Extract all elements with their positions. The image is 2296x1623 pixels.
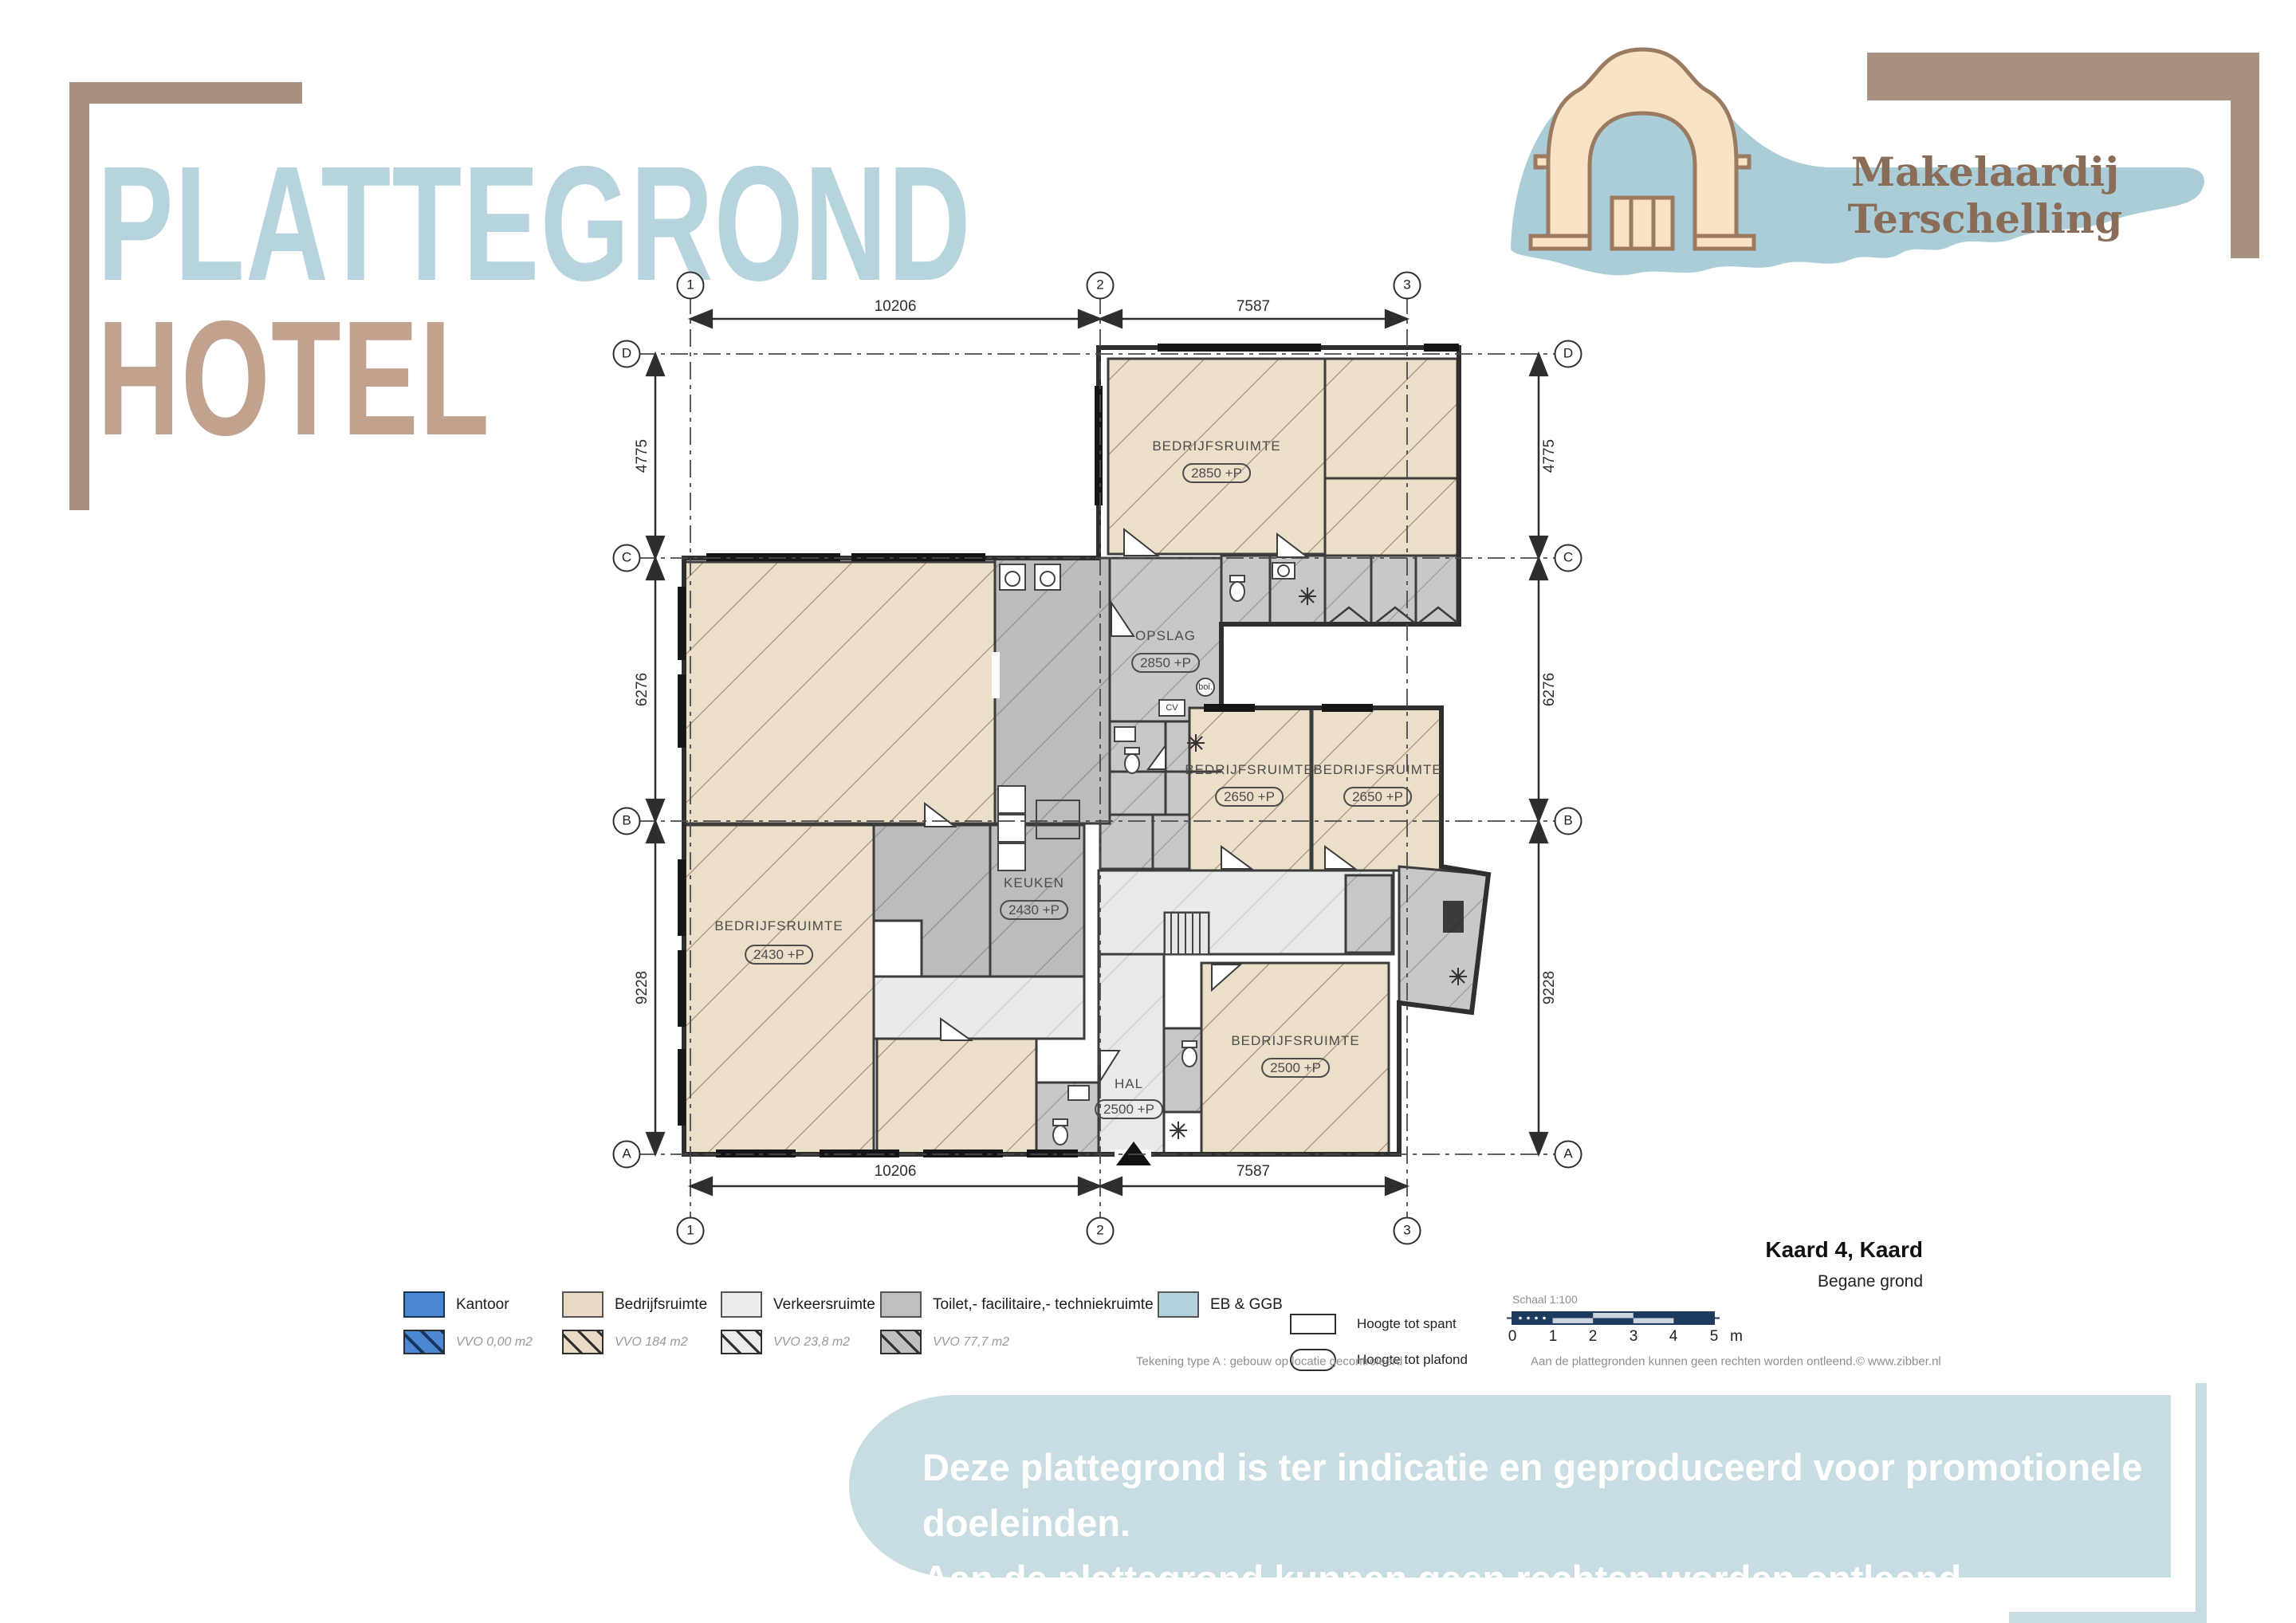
grid-col-1-top: 1 bbox=[677, 272, 705, 300]
note-drawing-type: Tekening type A : gebouw op locatie geco… bbox=[1136, 1355, 1402, 1369]
height-spant-symbol bbox=[1290, 1314, 1336, 1334]
scale-tick-0: 0 bbox=[1508, 1328, 1517, 1346]
floor-name: Begane grond bbox=[1818, 1272, 1923, 1291]
room-label-bedrijfsruimte-2650-right: BEDRIJFSRUIMTE bbox=[1313, 762, 1441, 778]
fixture-label-boiler: boi. bbox=[1198, 682, 1213, 692]
legend-vvo-bedrijfsruimte: VVO 184 m2 bbox=[615, 1335, 688, 1350]
fixture-label-cv: CV bbox=[1166, 703, 1177, 713]
dim-right-b-a: 9228 bbox=[1541, 971, 1559, 1004]
room-badge-2650-right: 2650 +P bbox=[1343, 787, 1412, 807]
grid-row-b-left: B bbox=[613, 808, 641, 835]
legend-swatch-bedrijfsruimte-vvo bbox=[562, 1330, 603, 1354]
legend-swatch-kantoor-vvo bbox=[403, 1330, 445, 1354]
scale-tick-3: 3 bbox=[1630, 1328, 1638, 1346]
grid-row-a-left: A bbox=[613, 1141, 641, 1169]
room-label-bedrijfsruimte-2850: BEDRIJFSRUIMTE bbox=[1152, 438, 1280, 454]
bracket-bottom-right-vertical bbox=[2196, 1383, 2207, 1623]
legend-label-bedrijfsruimte: Bedrijfsruimte bbox=[615, 1296, 707, 1314]
grid-col-1-bottom: 1 bbox=[677, 1217, 705, 1245]
scale-tick-2: 2 bbox=[1589, 1328, 1598, 1346]
grid-col-2-top: 2 bbox=[1087, 272, 1115, 300]
disclaimer-banner: Deze plattegrond is ter indicatie en gep… bbox=[849, 1395, 2171, 1578]
room-label-hal: HAL bbox=[1115, 1076, 1143, 1092]
bracket-bottom-right-horizontal bbox=[2009, 1612, 2207, 1623]
legend-label-toilet: Toilet,- facilitaire,- techniekruimte bbox=[933, 1296, 1154, 1314]
grid-row-d-left: D bbox=[613, 340, 641, 368]
room-badge-2500: 2500 +P bbox=[1261, 1058, 1330, 1078]
grid-row-c-right: C bbox=[1555, 544, 1582, 572]
room-badge-keuken: 2430 +P bbox=[1000, 900, 1068, 920]
dim-left-d-c: 4775 bbox=[634, 439, 651, 473]
room-label-opslag: OPSLAG bbox=[1135, 628, 1196, 644]
legend-swatch-toilet-vvo bbox=[880, 1330, 922, 1354]
room-label-bedrijfsruimte-2500: BEDRIJFSRUIMTE bbox=[1231, 1033, 1359, 1049]
grid-row-c-left: C bbox=[613, 544, 641, 572]
room-label-bedrijfsruimte-2650-left: BEDRIJFSRUIMTE bbox=[1185, 762, 1313, 778]
legend-swatch-eb-ggb bbox=[1158, 1291, 1199, 1318]
dim-right-c-b: 6276 bbox=[1541, 673, 1559, 706]
dim-right-d-c: 4775 bbox=[1541, 439, 1559, 473]
dim-top-2-3: 7587 bbox=[1236, 298, 1270, 316]
room-badge-opslag: 2850 +P bbox=[1131, 653, 1200, 673]
scale-tick-5: 5 bbox=[1710, 1328, 1719, 1346]
dim-left-c-b: 6276 bbox=[634, 673, 651, 706]
legend-vvo-verkeersruimte: VVO 23,8 m2 bbox=[773, 1335, 850, 1350]
dim-bottom-1-2: 10206 bbox=[875, 1163, 917, 1181]
legend-vvo-toilet: VVO 77,7 m2 bbox=[933, 1335, 1009, 1350]
legend-swatch-bedrijfsruimte bbox=[562, 1291, 603, 1318]
scale-label: Schaal 1:100 bbox=[1512, 1293, 1578, 1306]
scale-unit: m bbox=[1730, 1328, 1743, 1346]
dim-left-b-a: 9228 bbox=[634, 971, 651, 1004]
disclaimer-line-1: Deze plattegrond is ter indicatie en gep… bbox=[922, 1440, 2171, 1551]
grid-row-b-right: B bbox=[1555, 808, 1582, 835]
scale-tick-4: 4 bbox=[1669, 1328, 1678, 1346]
grid-col-3-bottom: 3 bbox=[1394, 1217, 1421, 1245]
disclaimer-line-2: Aan de plattegrond kunnen geen rechten w… bbox=[922, 1551, 2171, 1607]
room-badge-2850: 2850 +P bbox=[1182, 463, 1251, 483]
legend-vvo-kantoor: VVO 0,00 m2 bbox=[456, 1335, 533, 1350]
grid-row-a-right: A bbox=[1555, 1141, 1582, 1169]
room-label-bedrijfsruimte-2430: BEDRIJFSRUIMTE bbox=[714, 918, 843, 934]
dim-top-1-2: 10206 bbox=[875, 298, 917, 316]
floorplan-drawing bbox=[0, 0, 2296, 1623]
project-title: Kaard 4, Kaard bbox=[1765, 1237, 1923, 1263]
room-badge-hal: 2500 +P bbox=[1095, 1099, 1163, 1119]
height-spant-label: Hoogte tot spant bbox=[1357, 1316, 1457, 1332]
legend-swatch-verkeersruimte bbox=[721, 1291, 762, 1318]
room-badge-2650-left: 2650 +P bbox=[1215, 787, 1284, 807]
legend-swatch-verkeersruimte-vvo bbox=[721, 1330, 762, 1354]
grid-col-3-top: 3 bbox=[1394, 272, 1421, 300]
grid-col-2-bottom: 2 bbox=[1087, 1217, 1115, 1245]
room-badge-2430: 2430 +P bbox=[745, 945, 813, 965]
legend-label-verkeersruimte: Verkeersruimte bbox=[773, 1296, 875, 1314]
grid-row-d-right: D bbox=[1555, 340, 1582, 368]
page: { "title": { "line1": "PLATTEGROND", "li… bbox=[0, 0, 2296, 1623]
legend-label-eb-ggb: EB & GGB bbox=[1210, 1296, 1283, 1314]
scale-bar bbox=[1507, 1312, 1720, 1324]
dim-bottom-2-3: 7587 bbox=[1236, 1163, 1270, 1181]
legend-swatch-toilet bbox=[880, 1291, 922, 1318]
scale-tick-1: 1 bbox=[1549, 1328, 1558, 1346]
note-copyright: Aan de plattegronden kunnen geen rechten… bbox=[1531, 1355, 1941, 1369]
legend-label-kantoor: Kantoor bbox=[456, 1296, 509, 1314]
legend-swatch-kantoor bbox=[403, 1291, 445, 1318]
rooms bbox=[684, 359, 1488, 1154]
room-label-keuken: KEUKEN bbox=[1004, 875, 1064, 891]
